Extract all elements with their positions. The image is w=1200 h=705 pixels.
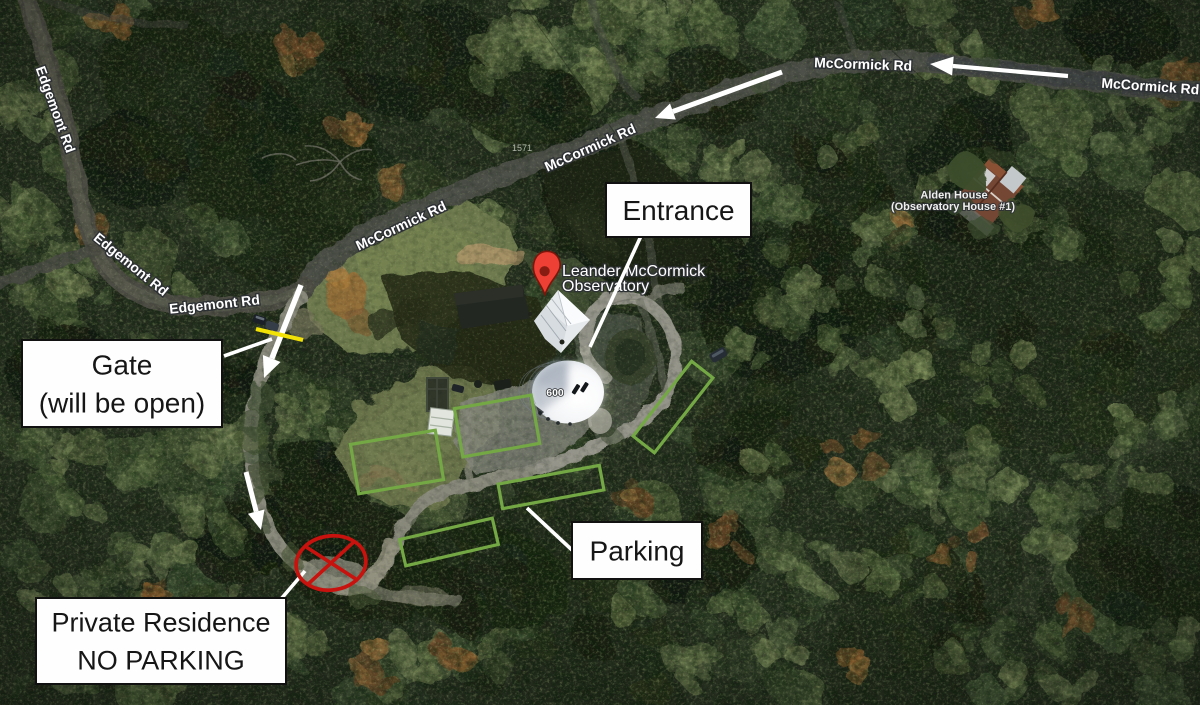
svg-text:NO PARKING: NO PARKING	[77, 646, 245, 676]
svg-text:600: 600	[546, 387, 564, 399]
svg-text:Entrance: Entrance	[622, 195, 734, 226]
svg-text:(will be open): (will be open)	[39, 387, 206, 418]
svg-text:McCormick Rd: McCormick Rd	[814, 54, 913, 73]
svg-text:Parking: Parking	[590, 535, 685, 566]
svg-text:Gate: Gate	[92, 349, 153, 380]
svg-text:Observatory: Observatory	[562, 278, 649, 295]
svg-text:1571: 1571	[512, 143, 532, 153]
svg-text:Private Residence: Private Residence	[51, 608, 270, 638]
svg-text:Alden House: Alden House	[920, 190, 987, 202]
svg-text:(Observatory House #1): (Observatory House #1)	[891, 201, 1015, 213]
